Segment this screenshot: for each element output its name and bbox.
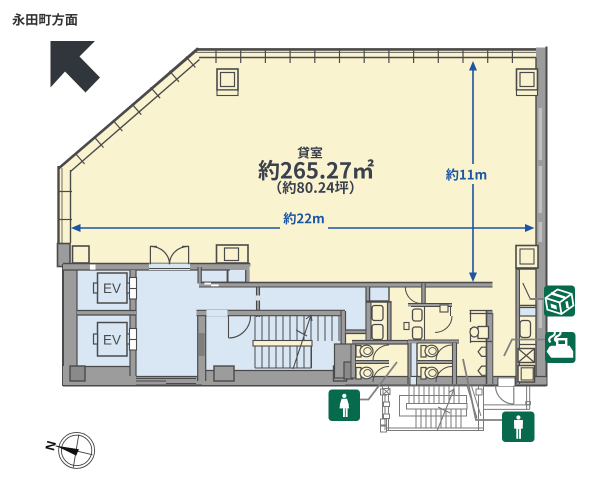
svg-text:EV: EV bbox=[103, 281, 121, 296]
svg-text:EV: EV bbox=[103, 333, 121, 348]
